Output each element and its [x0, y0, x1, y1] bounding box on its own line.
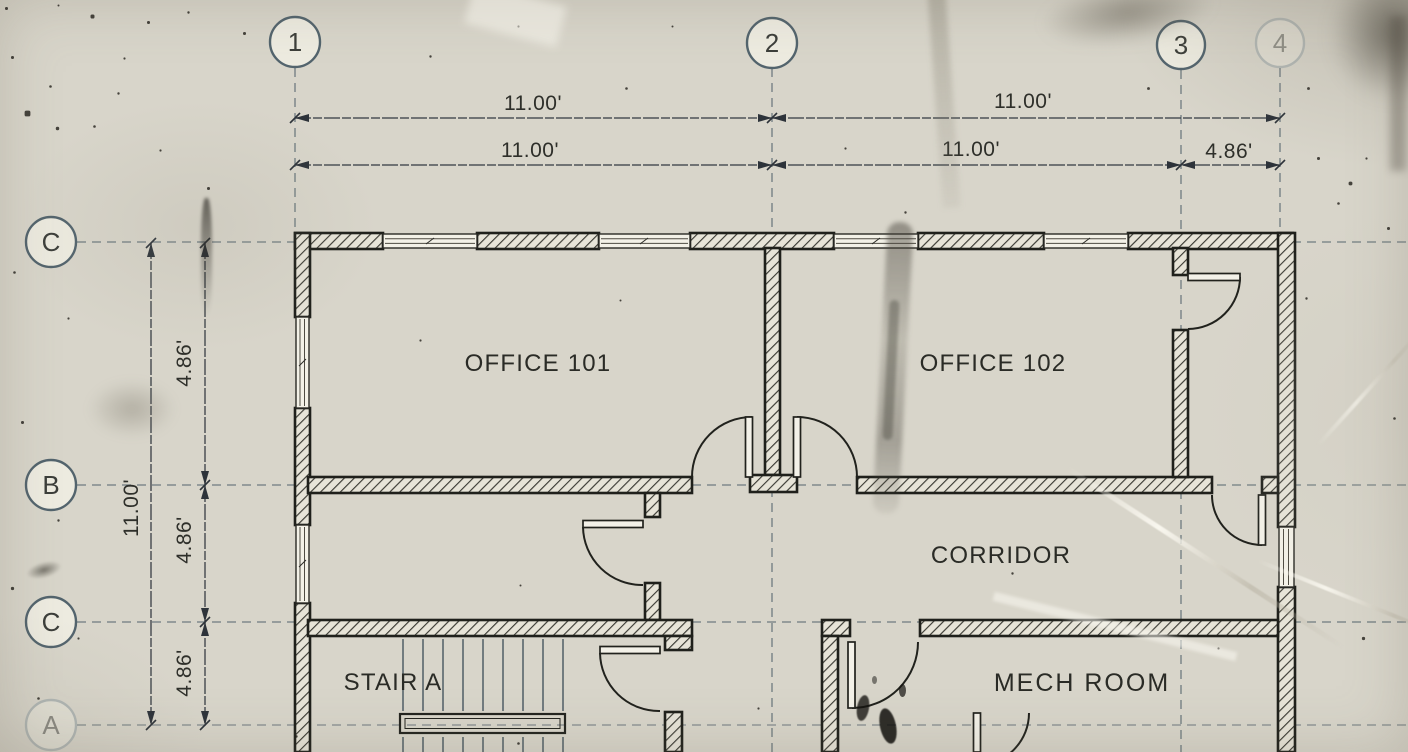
door-storage-room [1188, 274, 1240, 330]
stair-handrail [400, 714, 565, 733]
door-office-101 [692, 417, 753, 477]
column-bubble-label: 1 [288, 27, 302, 57]
dim-label: 4.86' [173, 516, 196, 563]
door-mech-room-inner [974, 713, 1030, 752]
wall-office102-east [1173, 330, 1188, 477]
room-label-mech-room: MECH ROOM [994, 669, 1170, 697]
row-bubble-c1: C [26, 217, 76, 267]
wall-top [690, 233, 834, 249]
window-top-4 [1044, 234, 1128, 248]
door-leaf [600, 647, 660, 654]
dim-label: 4.86' [1205, 140, 1252, 163]
door-swing-arc [977, 713, 1029, 752]
wall-corridor-south [308, 620, 692, 636]
row-bubble-a: A [26, 700, 76, 750]
door-leaf [848, 642, 855, 708]
row-bubble-b: B [26, 460, 76, 510]
door-leaf [794, 417, 801, 477]
window-right-1 [1279, 527, 1294, 587]
floor-plan-sheet: 11.00' 11.00' 11.00' 11.00' 4.86' 11.00'… [0, 0, 1408, 752]
wall-office-divider [765, 248, 780, 475]
door-leaf [1259, 495, 1266, 545]
door-stair-a [600, 647, 660, 712]
wall-top [477, 233, 599, 249]
row-bubble-label: C [42, 227, 61, 257]
window-left-2 [296, 525, 309, 603]
door-leaf [1188, 274, 1240, 281]
row-bubble-label: C [42, 607, 61, 637]
door-swing-arc [1212, 495, 1262, 545]
wall-mech-west [822, 636, 838, 752]
room-label-office-101: OFFICE 101 [465, 350, 612, 377]
door-leaf [974, 713, 981, 752]
dim-label: 4.86' [173, 649, 196, 696]
door-leaf [583, 521, 643, 528]
wall-jamb [1262, 477, 1278, 493]
dim-label: 11.00' [501, 139, 559, 162]
window-left-1 [296, 317, 309, 408]
wall-top [918, 233, 1044, 249]
room-label-corridor: CORRIDOR [931, 542, 1071, 569]
column-bubble-label: 3 [1174, 30, 1188, 60]
wall-left [295, 233, 310, 317]
column-bubble-label: 4 [1273, 28, 1287, 58]
grid-lines [77, 68, 1408, 752]
door-mech-room [848, 642, 918, 708]
door-leaf [746, 417, 753, 477]
column-bubble-1: 1 [270, 17, 320, 67]
wall-left [295, 408, 310, 525]
wall-vestibule-stub [645, 493, 660, 517]
dim-label: 11.00' [994, 90, 1052, 113]
dim-label: 4.86' [173, 339, 196, 386]
column-bubble-3: 3 [1157, 21, 1205, 69]
room-label-stair-a: STAIR A [344, 669, 443, 696]
wall-top [1128, 233, 1293, 249]
wall-mech-corner [822, 620, 850, 636]
wall-office102-east-stub [1173, 248, 1188, 275]
window-top-3 [834, 234, 918, 248]
wall-right [1278, 233, 1295, 527]
wall-corridor-north-east [857, 477, 1212, 493]
wall-mech-north [920, 620, 1278, 636]
stair-handrail-inner [405, 719, 560, 729]
wall-office-divider-foot [750, 475, 797, 492]
dim-label: 11.00' [120, 479, 143, 537]
dim-label: 11.00' [942, 138, 1000, 161]
dim-label: 11.00' [504, 92, 562, 115]
room-label-office-102: OFFICE 102 [920, 350, 1067, 377]
door-swing-arc [1188, 277, 1240, 329]
door-swing-arc [852, 642, 918, 708]
row-bubble-label: B [42, 470, 59, 500]
column-bubble-4: 4 [1256, 19, 1304, 67]
wall-stair-east-stub [665, 712, 682, 752]
door-swing-arc [583, 527, 643, 585]
row-bubble-c2: C [26, 597, 76, 647]
row-bubble-label: A [42, 710, 60, 740]
door-swing-arc [692, 417, 752, 477]
room-labels: OFFICE 101 OFFICE 102 CORRIDOR STAIR A M… [344, 350, 1170, 697]
door-corridor-east [1212, 495, 1266, 545]
column-bubble-2: 2 [747, 18, 797, 68]
column-bubble-label: 2 [765, 28, 779, 58]
window-top-1 [383, 234, 477, 248]
door-swing-arc [600, 653, 660, 711]
dimension-ticks [146, 113, 1285, 730]
wall-corridor-north-west [308, 477, 692, 493]
door-vestibule [583, 521, 643, 586]
door-swing-arc [797, 417, 857, 477]
dimension-labels: 11.00' 11.00' 11.00' 11.00' 4.86' 11.00'… [120, 90, 1253, 697]
door-office-102 [794, 417, 858, 477]
window-top-2 [599, 234, 690, 248]
wall-vestibule-stub [645, 583, 660, 620]
wall-right [1278, 587, 1295, 752]
wall-stair-jamb [665, 636, 692, 650]
floor-plan-drawing: 11.00' 11.00' 11.00' 11.00' 4.86' 11.00'… [0, 0, 1408, 752]
